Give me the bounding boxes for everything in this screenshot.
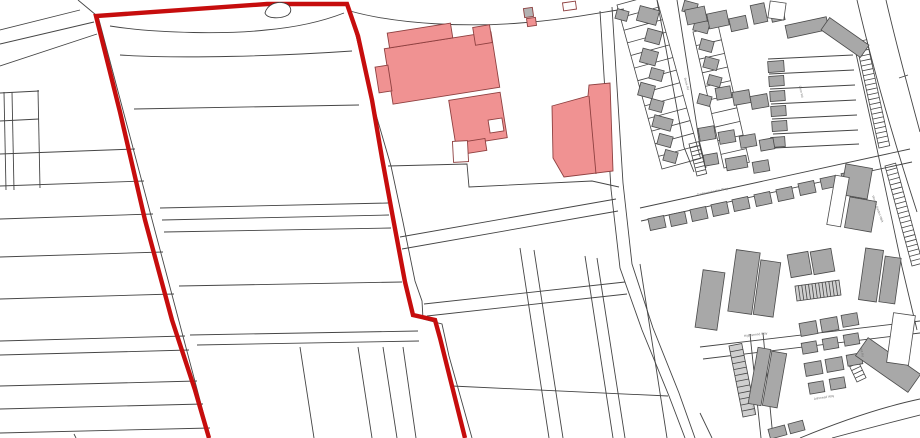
building — [799, 321, 818, 337]
field-line — [300, 347, 314, 438]
building — [804, 361, 823, 377]
building — [638, 82, 656, 98]
building — [768, 60, 785, 72]
field-line — [0, 214, 153, 219]
building — [841, 313, 859, 328]
field-line — [383, 347, 397, 438]
field-line — [78, 0, 96, 15]
street-label: Godmanchester Way — [696, 186, 728, 197]
field-line — [0, 10, 80, 30]
building — [759, 138, 775, 151]
road-line — [768, 55, 853, 59]
building — [750, 3, 768, 24]
field-line — [403, 347, 416, 438]
building — [739, 134, 757, 149]
building — [772, 120, 788, 131]
building — [801, 341, 818, 354]
road-line — [899, 75, 908, 78]
field-line — [74, 434, 76, 438]
field-line — [0, 149, 135, 154]
building — [645, 28, 663, 44]
field-line — [0, 181, 144, 186]
building — [808, 381, 825, 394]
building — [820, 317, 839, 333]
estate-buildings — [615, 0, 920, 438]
building — [752, 160, 770, 174]
building — [771, 105, 787, 116]
building — [845, 197, 877, 232]
garden-ladder — [795, 280, 841, 301]
field-line — [110, 13, 344, 33]
building — [768, 425, 787, 438]
site-interior-lines — [110, 13, 419, 438]
building — [798, 180, 816, 195]
field-line — [0, 91, 39, 93]
field-line — [534, 250, 563, 438]
building — [703, 56, 719, 70]
school-buildings — [375, 1, 576, 162]
building — [776, 186, 794, 201]
building — [703, 153, 719, 166]
field-line — [0, 404, 203, 409]
building — [729, 15, 748, 31]
building — [725, 155, 748, 170]
building — [788, 420, 805, 434]
field-lines-west — [0, 0, 210, 438]
building — [715, 86, 732, 100]
building — [769, 75, 785, 86]
building — [879, 256, 901, 304]
field-line — [0, 119, 39, 121]
building — [732, 196, 750, 211]
building — [648, 215, 666, 230]
field-line — [0, 381, 197, 386]
building — [770, 90, 786, 101]
field-line — [400, 199, 616, 237]
building — [768, 1, 786, 20]
field-line — [190, 331, 418, 335]
field-line — [38, 90, 40, 188]
field-line — [164, 228, 391, 232]
building — [732, 90, 751, 106]
garden-ladder — [885, 163, 920, 266]
building — [669, 211, 687, 226]
building — [810, 248, 835, 274]
field-line — [452, 386, 668, 396]
school-annex — [552, 83, 613, 177]
field-line — [197, 341, 419, 345]
field-line — [0, 34, 97, 66]
building — [711, 201, 729, 216]
school-building — [523, 7, 533, 17]
field-line — [98, 16, 210, 438]
school-building — [563, 1, 577, 11]
field-line — [0, 294, 174, 299]
field-line — [427, 294, 627, 316]
building — [695, 270, 725, 330]
field-line — [4, 92, 6, 190]
building — [649, 99, 664, 113]
building — [829, 377, 846, 390]
building — [636, 6, 659, 26]
building — [699, 39, 714, 53]
field-line — [424, 282, 625, 304]
field-line — [597, 258, 625, 438]
street-label: Ashmead Way — [814, 394, 835, 401]
field-line — [0, 428, 210, 433]
street-label: Highfarmed Way — [744, 331, 768, 338]
road-line — [886, 0, 920, 132]
building — [698, 126, 716, 142]
building — [652, 115, 673, 132]
field-line — [350, 9, 624, 25]
field-line — [0, 22, 94, 44]
field-line — [162, 215, 389, 220]
site-plan-frame: Brook RdGodmanchester WayHighfarmed WayA… — [0, 0, 920, 438]
field-line — [179, 282, 402, 286]
building — [718, 130, 736, 145]
building — [843, 333, 860, 346]
field-line — [358, 347, 372, 438]
building — [697, 93, 712, 106]
building — [657, 133, 673, 147]
building — [822, 337, 839, 350]
building — [690, 206, 708, 221]
road-line — [800, 399, 920, 438]
field-line — [120, 51, 352, 57]
school-building — [526, 17, 536, 26]
school-building — [552, 83, 613, 177]
building — [639, 48, 658, 66]
field-line — [520, 248, 549, 438]
building — [649, 68, 664, 82]
road-line — [700, 413, 712, 438]
building — [821, 18, 869, 58]
building — [615, 9, 629, 22]
field-line — [160, 203, 388, 208]
building — [887, 313, 916, 366]
building — [754, 191, 772, 206]
field-line — [0, 252, 163, 257]
school-building — [452, 141, 468, 163]
school-building — [488, 118, 504, 133]
field-line — [0, 350, 189, 355]
site-plan-map: Brook RdGodmanchester WayHighfarmed WayA… — [0, 0, 920, 438]
building — [750, 94, 769, 110]
field-line — [134, 105, 359, 109]
road-line — [832, 415, 920, 438]
school-building — [473, 25, 493, 45]
field-line — [402, 211, 618, 249]
building — [825, 357, 844, 373]
field-line — [640, 264, 667, 438]
building — [787, 251, 812, 277]
field-line — [0, 336, 185, 341]
field-line — [585, 256, 613, 438]
field-line — [12, 92, 14, 190]
building — [707, 10, 730, 29]
road-line — [774, 144, 859, 148]
